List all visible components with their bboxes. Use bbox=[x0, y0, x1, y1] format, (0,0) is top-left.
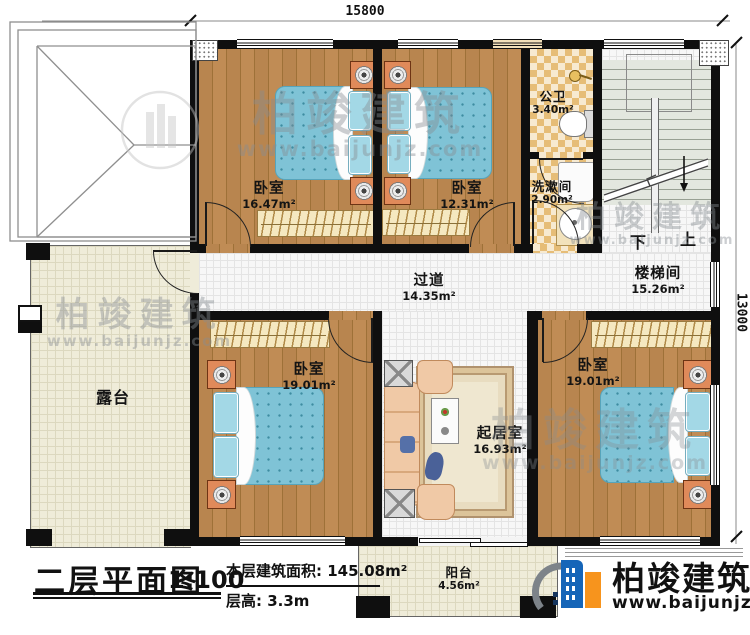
room-label-living-room: 起居室 16.93m² bbox=[461, 426, 539, 457]
room-label-bedroom-bot-left: 卧室 19.01m² bbox=[278, 362, 340, 393]
floor-plan-canvas: 15800 13000 bbox=[0, 0, 750, 635]
building-area-label: 本层建筑面积: bbox=[226, 562, 322, 580]
room-name: 阳台 bbox=[428, 565, 490, 580]
room-name: 卧室 bbox=[278, 362, 340, 379]
logo-building-blue bbox=[561, 560, 583, 608]
room-name: 卧室 bbox=[238, 181, 300, 198]
logo-icon bbox=[527, 550, 611, 616]
title-underline bbox=[33, 597, 221, 599]
room-name: 过道 bbox=[398, 273, 460, 290]
room-label-washroom: 洗漱间 2.90m² bbox=[522, 179, 582, 207]
logo-base-dots bbox=[553, 592, 558, 605]
logo-building-orange bbox=[585, 572, 601, 608]
room-area: 14.35m² bbox=[398, 290, 460, 304]
room-label-balcony: 阳台 4.56m² bbox=[428, 565, 490, 593]
building-area-row: 本层建筑面积: 145.08m² bbox=[226, 560, 407, 581]
stair-up-label: 上 bbox=[676, 230, 700, 249]
room-name: 露台 bbox=[82, 388, 144, 407]
floor-height-row: 层高: 3.3m bbox=[226, 590, 309, 611]
room-label-public-bathroom: 公卫 3.40m² bbox=[527, 89, 579, 117]
room-name: 洗漱间 bbox=[522, 179, 582, 194]
room-label-corridor: 过道 14.35m² bbox=[398, 273, 460, 304]
watermark-circle-logo bbox=[122, 92, 198, 168]
dimension-height: 13000 bbox=[734, 278, 749, 348]
room-area: 4.56m² bbox=[428, 580, 490, 593]
drawing-lines-layer bbox=[0, 0, 750, 635]
floor-height-value: 3.3m bbox=[267, 592, 309, 610]
room-name: 卧室 bbox=[562, 358, 624, 375]
room-area: 12.31m² bbox=[436, 198, 498, 212]
room-name: 楼梯间 bbox=[618, 266, 698, 283]
room-name: 卧室 bbox=[436, 181, 498, 198]
room-area: 19.01m² bbox=[278, 379, 340, 393]
room-label-bedroom-top-mid: 卧室 12.31m² bbox=[436, 181, 498, 212]
room-area: 15.26m² bbox=[618, 283, 698, 297]
room-area: 2.90m² bbox=[522, 194, 582, 207]
dimension-width: 15800 bbox=[330, 4, 400, 19]
room-label-bedroom-bot-right: 卧室 19.01m² bbox=[562, 358, 624, 389]
room-area: 19.01m² bbox=[562, 375, 624, 389]
room-label-stairwell: 楼梯间 15.26m² bbox=[618, 266, 698, 297]
room-name: 公卫 bbox=[527, 89, 579, 104]
titleblock-divider bbox=[226, 585, 380, 587]
floor-height-label: 层高: bbox=[226, 592, 262, 610]
stair-arrow-head bbox=[680, 183, 688, 192]
room-label-bedroom-top-left: 卧室 16.47m² bbox=[238, 181, 300, 212]
room-label-terrace: 露台 bbox=[82, 388, 144, 407]
logo-url: www.baijunjz.com bbox=[612, 593, 750, 613]
logo-swoosh bbox=[535, 566, 563, 608]
building-area-value: 145.08m² bbox=[327, 562, 407, 580]
room-area: 3.40m² bbox=[527, 104, 579, 117]
title-underline bbox=[33, 592, 221, 595]
room-name: 起居室 bbox=[461, 426, 539, 443]
stair-down-label: 下 bbox=[626, 233, 650, 252]
room-area: 16.47m² bbox=[238, 198, 300, 212]
room-area: 16.93m² bbox=[461, 443, 539, 457]
